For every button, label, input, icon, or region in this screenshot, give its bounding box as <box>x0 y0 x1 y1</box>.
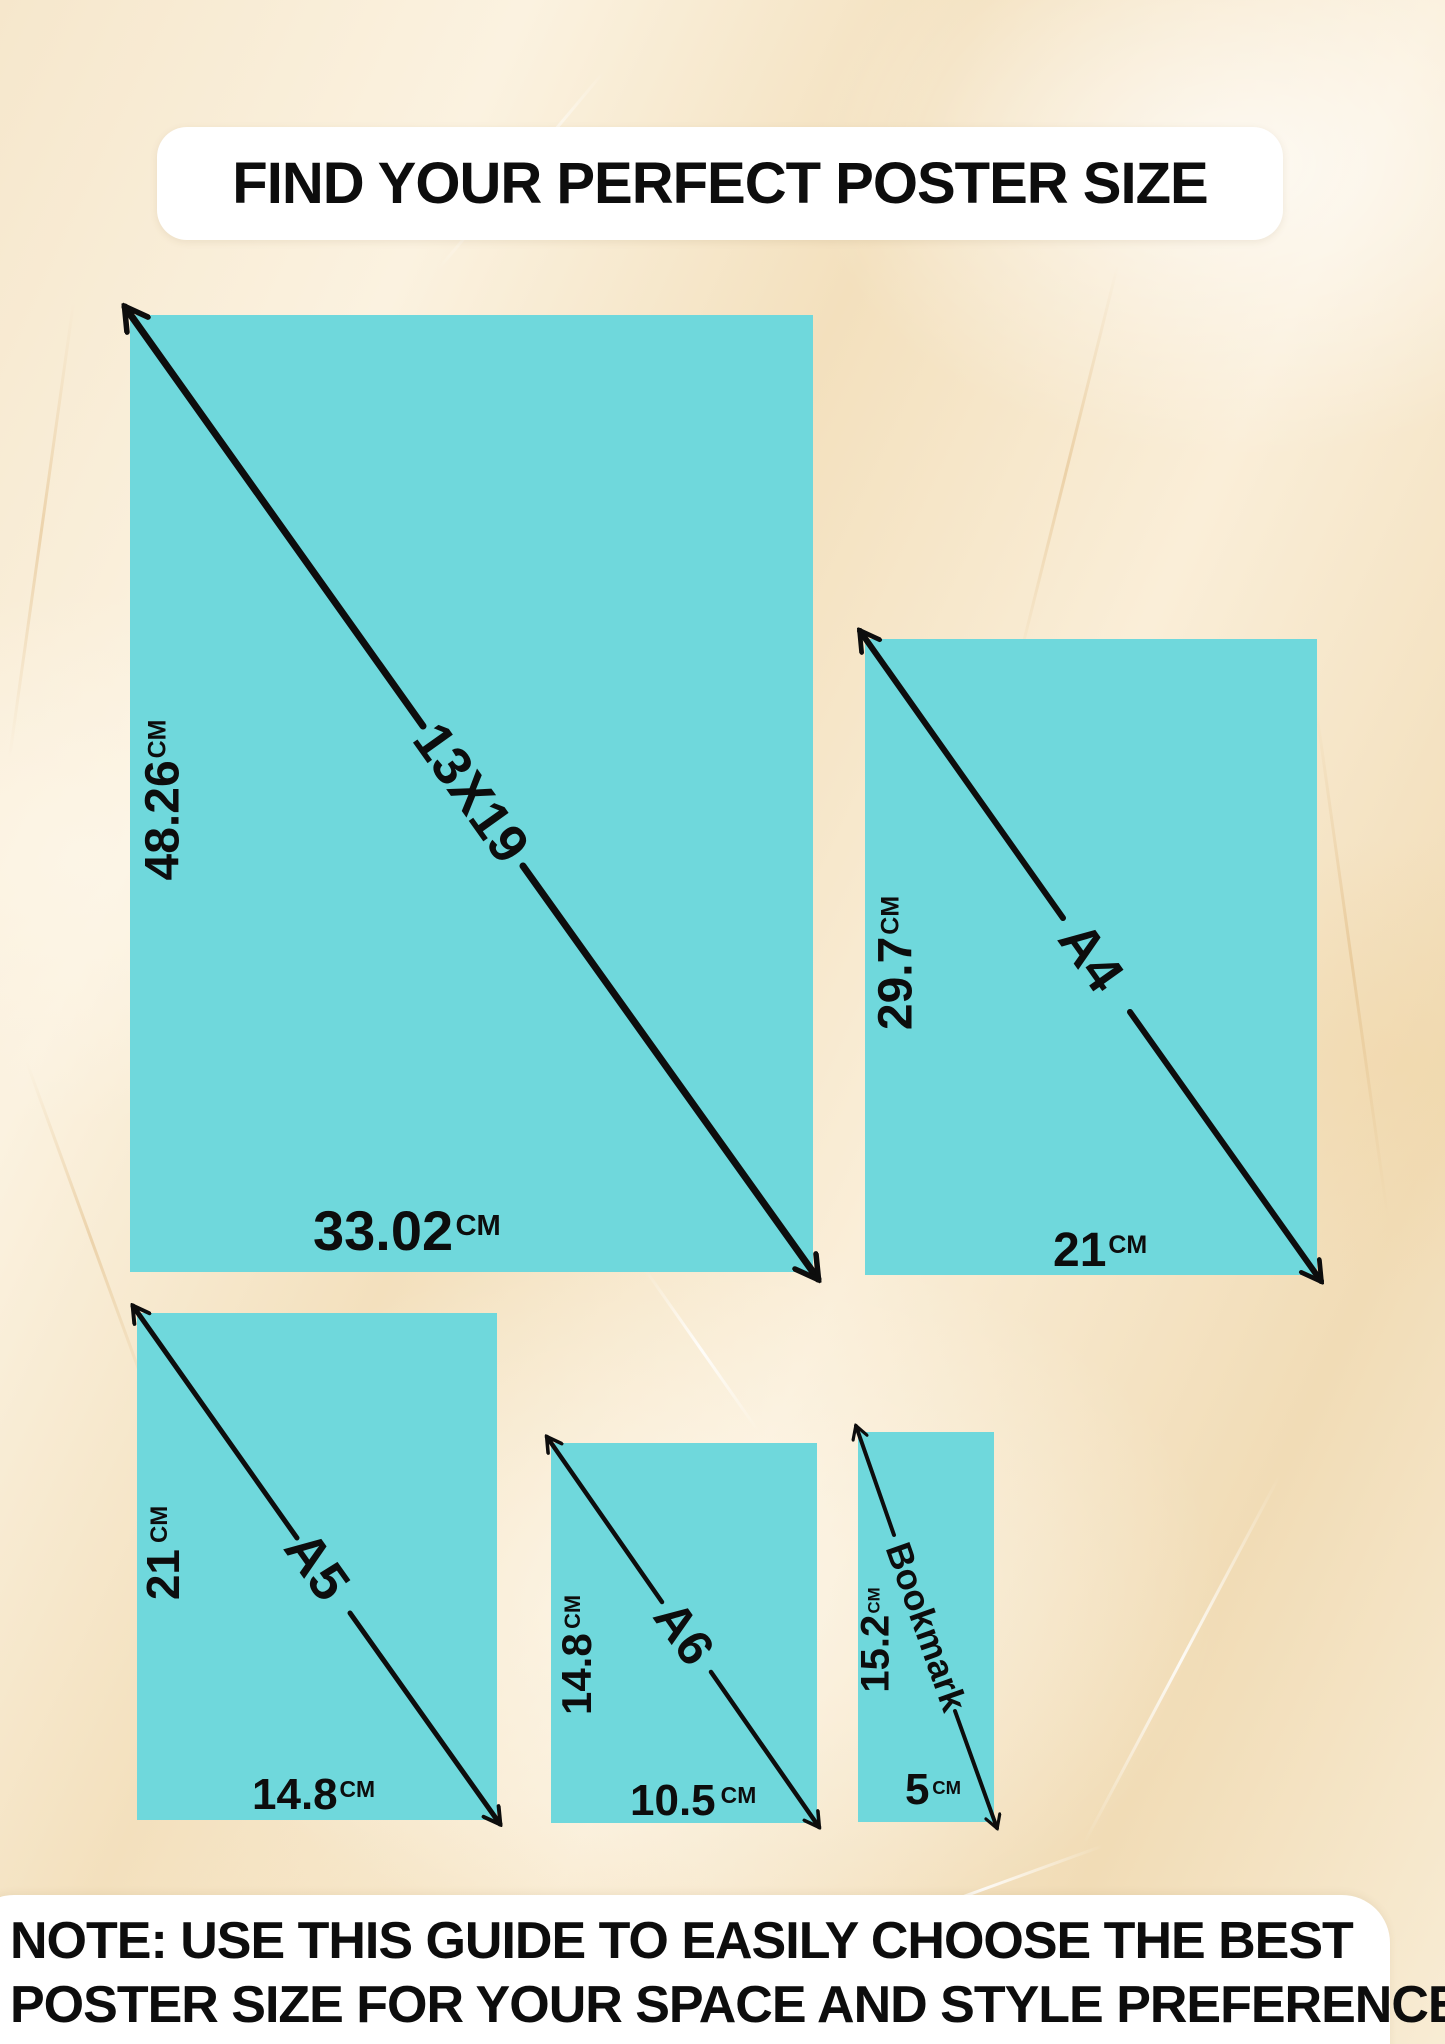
poster-size-guide: FIND YOUR PERFECT POSTER SIZE 13X19 48.2… <box>0 0 1445 2044</box>
height-value: 21 <box>137 1549 189 1600</box>
unit-label: CM <box>339 1776 375 1802</box>
poster-panel-a4: A4 29.7CM 21CM <box>865 639 1317 1275</box>
poster-panel-bookmark: Bookmark 15.2CM 5CM <box>858 1432 994 1822</box>
unit-label: CM <box>932 1777 961 1798</box>
width-value: 10.5 <box>630 1776 716 1825</box>
width-value: 33.02 <box>313 1199 453 1262</box>
width-value: 21 <box>1053 1224 1106 1277</box>
height-label: 29.7CM <box>869 896 924 1030</box>
height-value: 15.2 <box>854 1615 898 1693</box>
page-title: FIND YOUR PERFECT POSTER SIZE <box>232 150 1207 217</box>
width-value: 5 <box>905 1765 929 1814</box>
height-value: 29.7 <box>870 937 923 1030</box>
height-label: 15.2CM <box>854 1587 899 1692</box>
height-label: 14.8CM <box>553 1595 601 1715</box>
title-banner: FIND YOUR PERFECT POSTER SIZE <box>157 127 1283 240</box>
marble-vein <box>8 302 75 758</box>
unit-label: CM <box>1108 1231 1147 1259</box>
unit-label: CM <box>560 1595 585 1629</box>
unit-label: CM <box>146 1506 173 1543</box>
height-label: 48.26CM <box>136 720 191 881</box>
unit-label: CM <box>455 1210 500 1242</box>
marble-vein <box>1082 1474 1282 1846</box>
unit-label: CM <box>865 1587 884 1613</box>
unit-label: CM <box>144 720 172 759</box>
note-line-1: NOTE: USE THIS GUIDE TO EASILY CHOOSE TH… <box>10 1909 1370 1973</box>
poster-panel-13x19: 13X19 48.26CM 33.02CM <box>130 315 813 1272</box>
width-value: 14.8 <box>252 1770 338 1819</box>
poster-panel-a6: A6 14.8CM 10.5CM <box>551 1443 817 1823</box>
width-label: 21CM <box>1053 1227 1147 1275</box>
note-line-2: POSTER SIZE FOR YOUR SPACE AND STYLE PRE… <box>10 1973 1370 2037</box>
height-value: 48.26 <box>137 760 190 880</box>
poster-panel-a5: A5 21CM 14.8CM <box>137 1313 497 1820</box>
width-label: 14.8CM <box>252 1773 375 1817</box>
width-label: 10.5CM <box>630 1779 756 1823</box>
marble-vein <box>1014 266 1119 674</box>
note-banner: NOTE: USE THIS GUIDE TO EASILY CHOOSE TH… <box>0 1895 1390 2044</box>
height-value: 14.8 <box>553 1633 600 1715</box>
unit-label: CM <box>721 1782 757 1808</box>
marble-vein <box>643 1267 760 1433</box>
marble-vein <box>1314 702 1389 1217</box>
height-label: 21CM <box>136 1506 190 1600</box>
unit-label: CM <box>877 896 905 935</box>
width-label: 33.02CM <box>313 1203 501 1259</box>
width-label: 5CM <box>905 1768 961 1812</box>
